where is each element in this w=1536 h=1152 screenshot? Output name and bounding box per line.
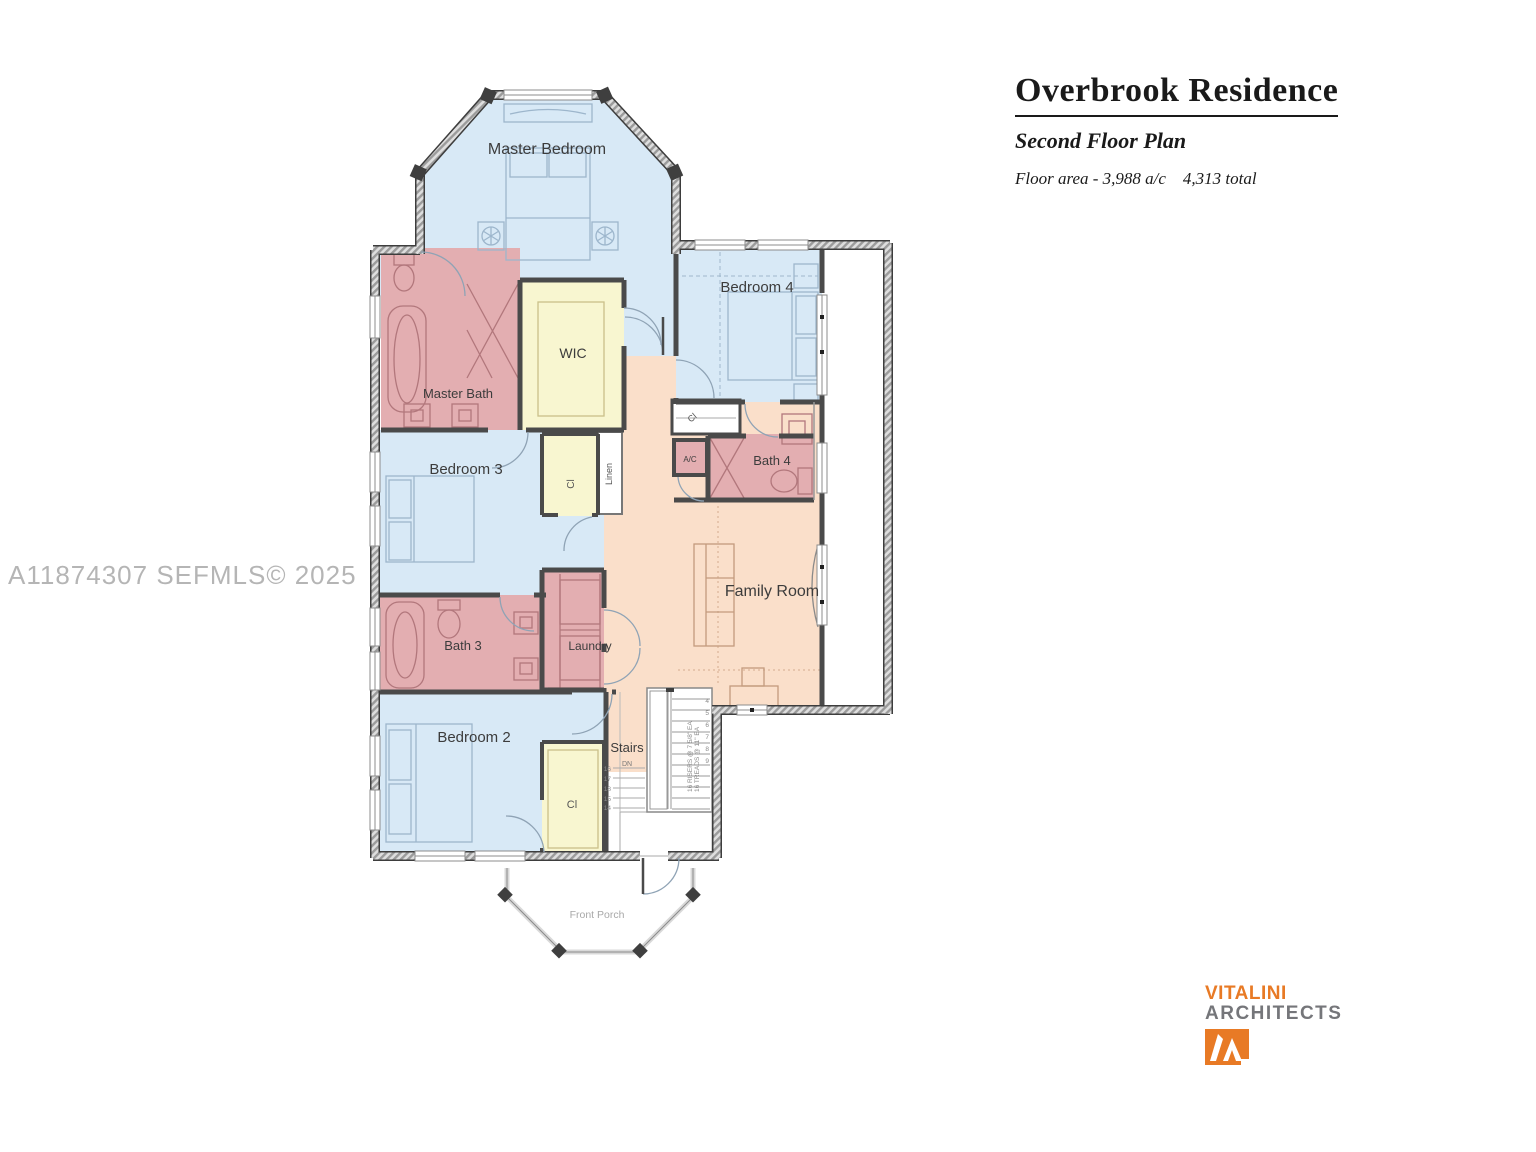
label-stairs: Stairs	[610, 740, 644, 755]
label-closet-b2: Cl	[567, 799, 577, 811]
architect-logo: VITALINI ARCHITECTS	[1205, 984, 1342, 1070]
stair-note-2: 16 TREADS @ 11" EA	[694, 726, 701, 792]
stair-num: 8	[705, 746, 709, 753]
stair-note-1: 16 RISERS @ 7 5/8" EA	[687, 721, 694, 792]
room-master-bath	[381, 248, 520, 430]
stairs-area	[604, 690, 647, 772]
label-wic: WIC	[559, 345, 586, 361]
plan-subtitle: Second Floor Plan	[1015, 128, 1355, 154]
label-bedroom-2: Bedroom 2	[437, 729, 510, 746]
label-laundry: Laundry	[568, 639, 611, 653]
stair-num: 5	[705, 710, 709, 717]
stair-num: 4	[705, 698, 709, 705]
label-bedroom-4: Bedroom 4	[720, 279, 793, 296]
stair-num: 15	[604, 796, 612, 803]
stair-num: 16	[604, 766, 612, 773]
label-closet-b3: Cl	[566, 479, 577, 488]
label-family-room: Family Room	[725, 583, 819, 600]
logo-type: ARCHITECTS	[1205, 1004, 1342, 1024]
stair-num: 17	[604, 776, 612, 783]
label-bath-3: Bath 3	[444, 638, 482, 653]
logo-mark-icon	[1205, 1029, 1249, 1065]
stair-num: 9	[705, 758, 709, 765]
label-bedroom-3: Bedroom 3	[429, 461, 502, 478]
label-master-bath: Master Bath	[423, 386, 493, 401]
plan-title: Overbrook Residence	[1015, 72, 1338, 117]
room-laundry	[542, 570, 604, 692]
floor-plan-page: Master Bedroom Bedroom 4 WIC Master Bath…	[0, 0, 1536, 1152]
logo-name: VITALINI	[1205, 984, 1342, 1004]
label-bath-4: Bath 4	[753, 453, 791, 468]
closet-bedroom3	[542, 432, 598, 516]
floor-area-note: Floor area - 3,988 a/c 4,313 total	[1015, 169, 1355, 189]
closet-hall	[672, 400, 740, 434]
mls-watermark: A11874307 SEFMLS© 2025	[8, 560, 357, 590]
label-linen: Linen	[604, 463, 614, 485]
hall-upper	[622, 250, 676, 358]
room-bedroom-4	[676, 246, 822, 402]
stair-num: 7	[705, 734, 709, 741]
label-dn: DN	[622, 761, 632, 768]
stair-num: 14	[604, 805, 612, 812]
label-ac: A/C	[683, 455, 697, 464]
label-master-bedroom: Master Bedroom	[488, 141, 606, 158]
title-block: Overbrook Residence Second Floor Plan Fl…	[1015, 72, 1355, 189]
label-front-porch: Front Porch	[570, 909, 625, 921]
stair-num: 6	[705, 722, 709, 729]
stair-num: 18	[604, 786, 612, 793]
